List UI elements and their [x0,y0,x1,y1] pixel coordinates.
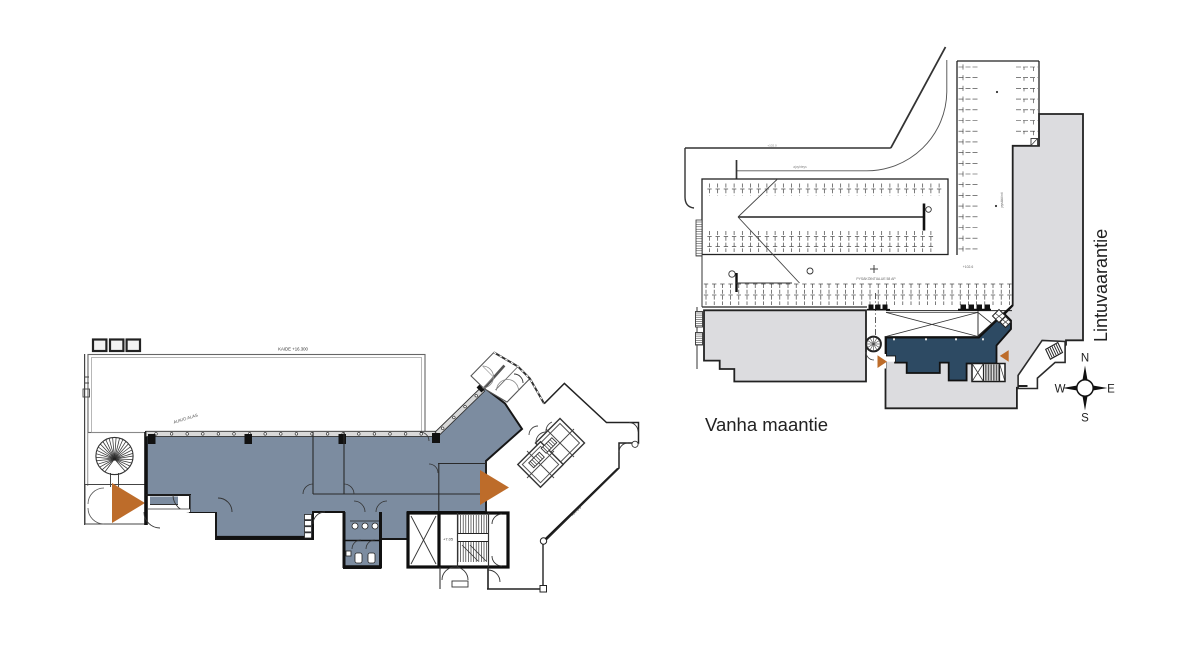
svg-text:ajoyhteys: ajoyhteys [793,165,807,169]
svg-text:+102.6: +102.6 [963,265,974,269]
svg-text:pysäköinti: pysäköinti [1000,192,1004,207]
svg-text:S: S [1081,413,1089,425]
svg-text:W: W [1055,384,1066,396]
svg-text:Vanha maantie: Vanha maantie [705,414,828,435]
svg-text:PYSÄKÖINTIALUE 58 AP: PYSÄKÖINTIALUE 58 AP [856,277,896,281]
svg-text:+7.05: +7.05 [443,537,454,542]
svg-text:N: N [1081,353,1089,365]
svg-text:Lintuvaarantie: Lintuvaarantie [1091,229,1111,342]
svg-text:KAIDE +16.300: KAIDE +16.300 [278,347,308,352]
svg-text:+102.0: +102.0 [767,144,777,148]
svg-text:E: E [1107,384,1115,396]
